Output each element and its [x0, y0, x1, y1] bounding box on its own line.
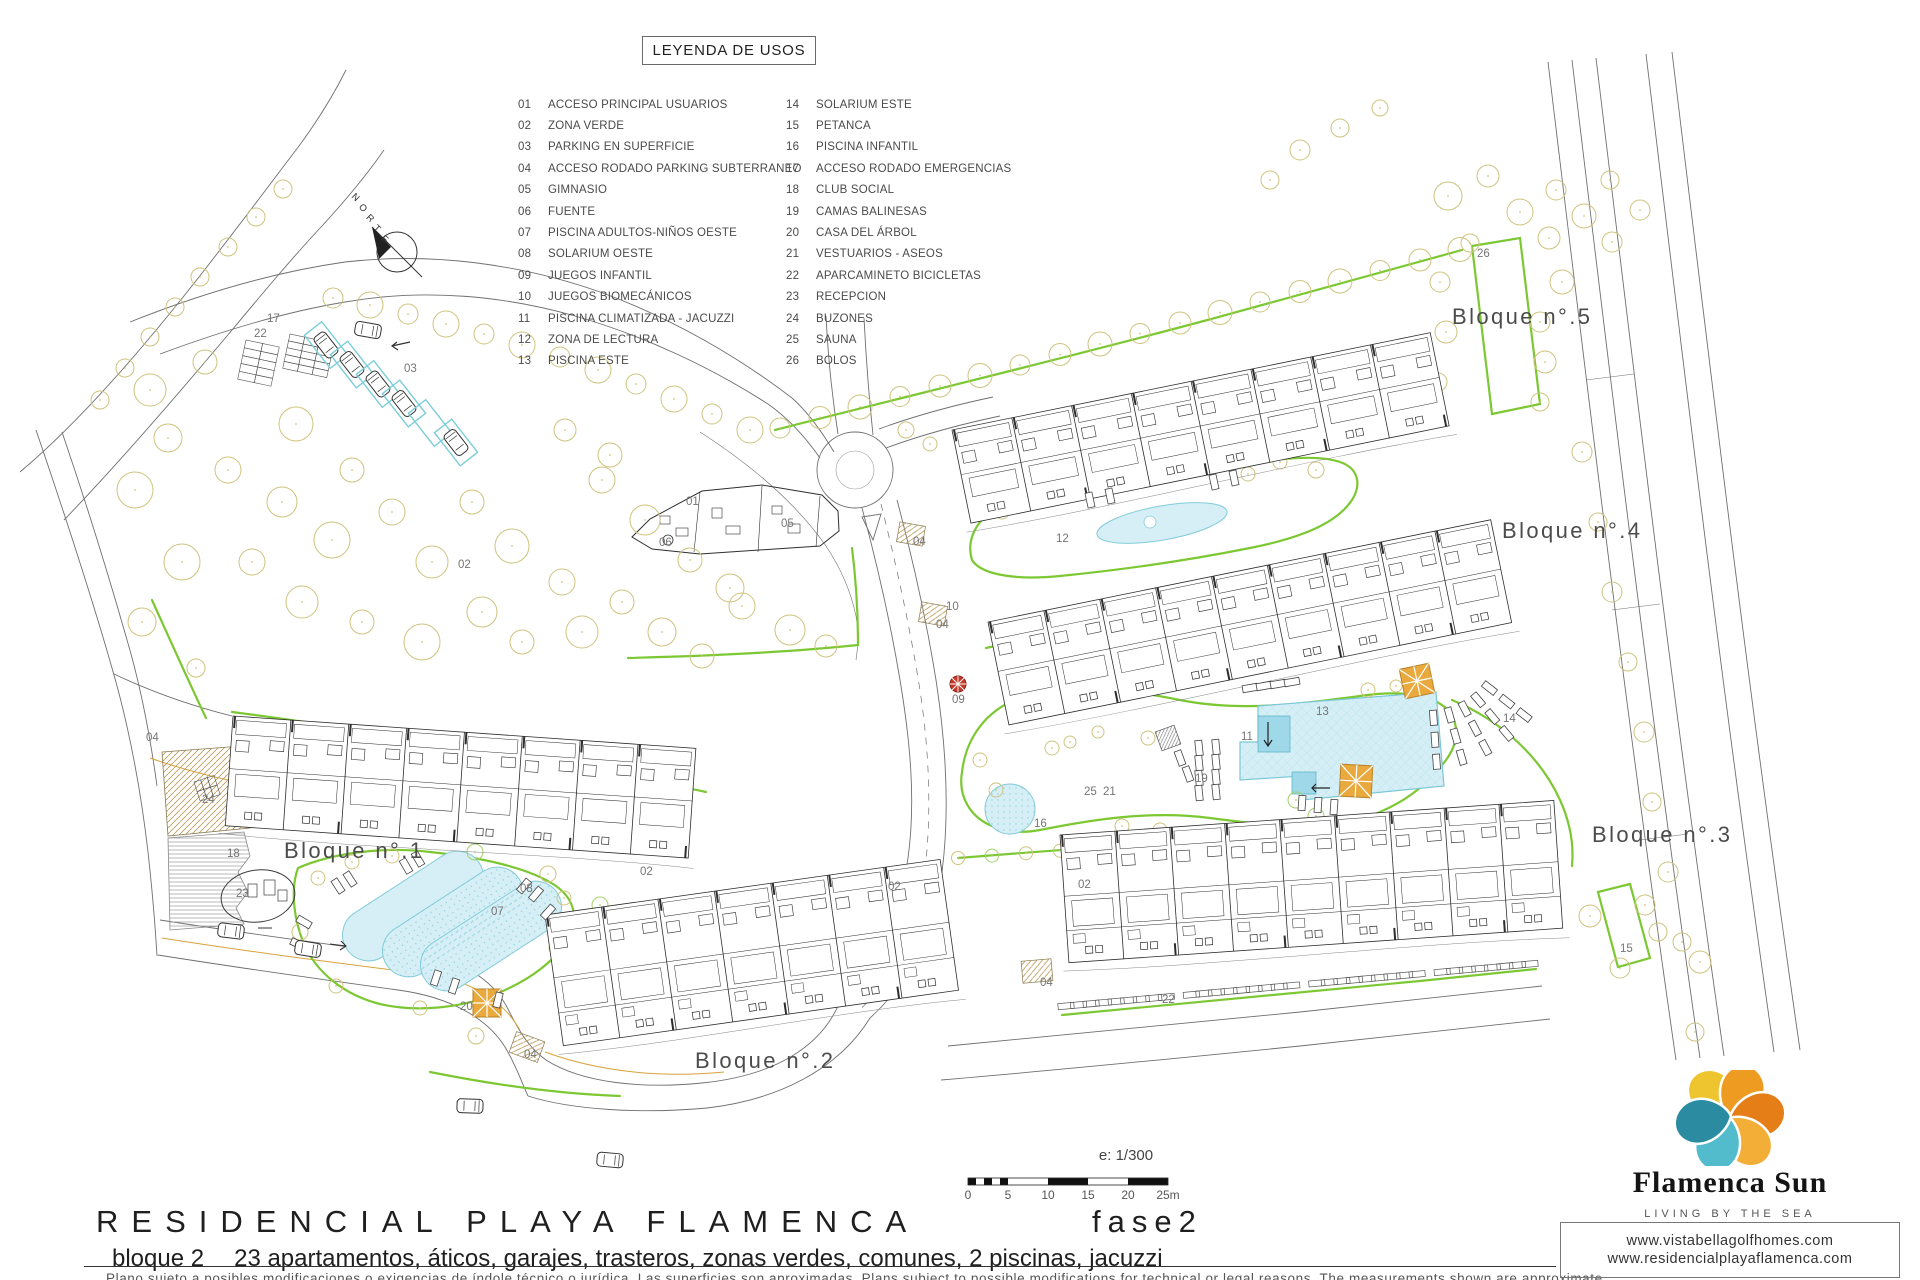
- car-icon: [338, 350, 365, 379]
- area-label: 07: [491, 906, 504, 918]
- legend-item-number: 09: [518, 270, 548, 282]
- legend-item-number: 12: [518, 334, 548, 346]
- sun-lounger: [1212, 784, 1221, 800]
- area-label: 08: [520, 883, 533, 895]
- car-icon: [457, 1099, 483, 1114]
- legend-item-label: SOLARIUM ESTE: [816, 99, 912, 111]
- area-label: 20: [460, 1001, 473, 1013]
- sun-lounger: [1229, 470, 1239, 486]
- legend-item: 18CLUB SOCIAL: [786, 180, 1066, 201]
- area-label: 04: [936, 619, 949, 631]
- area-label: 22: [1162, 994, 1175, 1006]
- legend-item-label: SOLARIUM OESTE: [548, 248, 653, 260]
- legend-item-number: 26: [786, 355, 816, 367]
- sun-lounger: [1195, 740, 1204, 756]
- sun-lounger: [1432, 754, 1440, 769]
- car-icon: [442, 428, 469, 457]
- legend-item: 17ACCESO RODADO EMERGENCIAS: [786, 158, 1066, 179]
- legend-item: 16PISCINA INFANTIL: [786, 137, 1066, 158]
- area-label: 04: [146, 732, 159, 744]
- scale-tick-label: 25m: [1156, 1188, 1179, 1202]
- legend-item-label: FUENTE: [548, 206, 595, 218]
- legend-item: 10JUEGOS BIOMECÁNICOS: [518, 287, 798, 308]
- playground-marker: [950, 676, 966, 692]
- bike-stall: [1522, 960, 1538, 967]
- legend-item-number: 16: [786, 141, 816, 153]
- sun-lounger: [1182, 766, 1194, 782]
- legend-item-label: PISCINA CLIMATIZADA - JACUZZI: [548, 313, 734, 325]
- legend-item: 06FUENTE: [518, 201, 798, 222]
- website-url: www.residencialplayaflamenca.com: [1608, 1251, 1853, 1267]
- brand-tagline: LIVING BY THE SEA: [1540, 1208, 1920, 1220]
- pool-heated-jacuzzi: [1258, 716, 1290, 752]
- legend-item-number: 15: [786, 120, 816, 132]
- block-label: Bloque n°.5: [1452, 304, 1592, 329]
- legend-item: 23RECEPCION: [786, 287, 1066, 308]
- area-label: 03: [404, 363, 417, 375]
- legend-item-label: APARCAMINETO BICICLETAS: [816, 270, 981, 282]
- legend-item-number: 02: [518, 120, 548, 132]
- legend-item: 03PARKING EN SUPERFICIE: [518, 137, 798, 158]
- legend-item-number: 08: [518, 248, 548, 260]
- phase-label: fase2: [1092, 1204, 1203, 1240]
- legend-item-label: JUEGOS BIOMECÁNICOS: [548, 291, 692, 303]
- sun-lounger: [1212, 754, 1221, 770]
- sun-lounger: [1450, 728, 1461, 744]
- legend-item-label: PETANCA: [816, 120, 871, 132]
- legend-item: 13PISCINA ESTE: [518, 351, 798, 372]
- sun-lounger: [1209, 474, 1219, 490]
- area-label: 01: [686, 496, 699, 508]
- area-label: 02: [888, 881, 901, 893]
- legend-item: 02ZONA VERDE: [518, 115, 798, 136]
- club-social: [168, 832, 250, 930]
- legend-item-label: SAUNA: [816, 334, 857, 346]
- legend-item-label: BOLOS: [816, 355, 857, 367]
- area-label: 25: [1084, 786, 1097, 798]
- legend-item-label: CLUB SOCIAL: [816, 184, 894, 196]
- sun-lounger: [1456, 749, 1467, 765]
- reading-zone-pool: [1094, 495, 1230, 551]
- wooden-deck: [1399, 663, 1435, 699]
- footer-divider: [84, 1266, 1556, 1267]
- legend-item-label: JUEGOS INFANTIL: [548, 270, 652, 282]
- area-label: 21: [1103, 786, 1116, 798]
- scale-tick-label: 15: [1081, 1188, 1095, 1202]
- legend-item: 04ACCESO RODADO PARKING SUBTERRANEO: [518, 158, 798, 179]
- legend-item-number: 04: [518, 163, 548, 175]
- sun-lounger: [1298, 795, 1306, 810]
- legend-item: 21VESTUARIOS - ASEOS: [786, 244, 1066, 265]
- scale-tick-label: 0: [965, 1188, 972, 1202]
- legend-item: 01ACCESO PRINCIPAL USUARIOS: [518, 94, 798, 115]
- bike-stall: [1409, 971, 1425, 978]
- sun-lounger: [1195, 785, 1204, 801]
- sun-lounger: [1444, 707, 1455, 723]
- scale-tick-label: 10: [1041, 1188, 1055, 1202]
- sun-lounger: [1479, 739, 1492, 756]
- legend-item-number: 18: [786, 184, 816, 196]
- legend-title: LEYENDA DE USOS: [642, 36, 816, 65]
- legend-item-number: 03: [518, 141, 548, 153]
- sun-lounger: [1314, 797, 1322, 812]
- legend-item-number: 01: [518, 99, 548, 111]
- sun-lounger: [1516, 708, 1532, 723]
- scale-tick-label: 5: [1005, 1188, 1012, 1202]
- sun-lounger: [1270, 679, 1286, 688]
- sun-lounger: [1212, 769, 1221, 785]
- sun-lounger: [1468, 720, 1481, 737]
- sun-lounger: [1431, 732, 1439, 747]
- area-label: 04: [913, 536, 926, 548]
- legend-item: 14SOLARIUM ESTE: [786, 94, 1066, 115]
- legend-item: 08SOLARIUM OESTE: [518, 244, 798, 265]
- sun-lounger: [1174, 750, 1186, 766]
- area-label: 17: [267, 313, 280, 325]
- legend-item-label: BUZONES: [816, 313, 873, 325]
- sun-lounger: [1499, 725, 1514, 741]
- legend-item-label: ZONA VERDE: [548, 120, 624, 132]
- area-label: 15: [1620, 943, 1633, 955]
- area-label: 02: [1078, 879, 1091, 891]
- legend-item-number: 13: [518, 355, 548, 367]
- area-label: 11: [1241, 731, 1253, 743]
- legend-item-number: 14: [786, 99, 816, 111]
- area-label: 02: [458, 559, 471, 571]
- area-label: 24: [202, 794, 215, 806]
- area-label: 04: [524, 1049, 537, 1061]
- legend-item-number: 06: [518, 206, 548, 218]
- area-label: 26: [1477, 248, 1490, 260]
- block-label: Bloque n°.1: [284, 838, 424, 863]
- legend-item-number: 17: [786, 163, 816, 175]
- legend-item: 25SAUNA: [786, 329, 1066, 350]
- pool-infant: [985, 784, 1035, 834]
- legend-item-label: VESTUARIOS - ASEOS: [816, 248, 943, 260]
- legend-item-label: ACCESO RODADO PARKING SUBTERRANEO: [548, 163, 802, 175]
- area-label: 04: [1040, 977, 1053, 989]
- legend-item-label: PISCINA ESTE: [548, 355, 629, 367]
- block-summary-text: 23 apartamentos, áticos, garajes, traste…: [234, 1245, 1162, 1272]
- area-label: 14: [1503, 713, 1516, 725]
- legend-item: 07PISCINA ADULTOS-NIÑOS OESTE: [518, 222, 798, 243]
- car-icon: [354, 321, 382, 339]
- compass-letter: R: [364, 212, 377, 225]
- block-label: Bloque n°.2: [695, 1048, 835, 1073]
- sun-lounger: [1284, 677, 1300, 686]
- car-icon: [596, 1152, 623, 1168]
- area-label: 22: [254, 328, 267, 340]
- legend-item: 12ZONA DE LECTURA: [518, 329, 798, 350]
- area-label: 16: [1034, 818, 1047, 830]
- scale-tick-label: 20: [1121, 1188, 1135, 1202]
- car-icon: [312, 330, 339, 359]
- biomech-games: [1155, 725, 1181, 751]
- legend-item-label: ZONA DE LECTURA: [548, 334, 658, 346]
- legend-item-label: PARKING EN SUPERFICIE: [548, 141, 694, 153]
- sun-lounger: [1330, 799, 1338, 814]
- legend-column-2: 14SOLARIUM ESTE15PETANCA16PISCINA INFANT…: [786, 94, 1066, 372]
- legend-item-number: 19: [786, 206, 816, 218]
- bike-parking-grid: [238, 340, 280, 386]
- compass-letter: O: [356, 202, 369, 215]
- legend-item-number: 07: [518, 227, 548, 239]
- legend-item: 19CAMAS BALINESAS: [786, 201, 1066, 222]
- north-compass: [372, 227, 422, 277]
- sun-swirl-logo-icon: [1674, 1070, 1786, 1166]
- apartment-block: [539, 859, 966, 1057]
- area-label: 10: [946, 601, 959, 613]
- legend-item-number: 20: [786, 227, 816, 239]
- legend-item-label: GIMNASIO: [548, 184, 607, 196]
- area-label: 12: [1056, 533, 1069, 545]
- brand-name: Flamenca Sun: [1540, 1166, 1920, 1200]
- sun-lounger: [1499, 694, 1515, 709]
- legend-item-number: 24: [786, 313, 816, 325]
- legend-item: 11PISCINA CLIMATIZADA - JACUZZI: [518, 308, 798, 329]
- website-url: www.vistabellagolfhomes.com: [1627, 1233, 1834, 1249]
- sun-lounger: [331, 878, 345, 894]
- compass-letters: NORTE: [349, 191, 390, 245]
- area-label: 09: [952, 694, 965, 706]
- legend-item-label: PISCINA INFANTIL: [816, 141, 918, 153]
- brand-logo-block: Flamenca Sun LIVING BY THE SEA www.vista…: [1540, 1062, 1920, 1280]
- car-icon: [364, 369, 391, 398]
- area-label: 19: [1195, 773, 1208, 785]
- sun-lounger: [343, 871, 357, 887]
- bike-stall: [1283, 982, 1299, 989]
- block-summary-prefix: bloque 2: [112, 1245, 204, 1272]
- legend-item-number: 21: [786, 248, 816, 260]
- area-label: 13: [1316, 706, 1329, 718]
- sun-lounger: [1242, 683, 1258, 692]
- legend-item-label: RECEPCION: [816, 291, 886, 303]
- wooden-deck: [1339, 764, 1373, 798]
- sun-lounger: [1485, 709, 1500, 725]
- car-icon: [390, 389, 417, 418]
- block-summary: bloque 223 apartamentos, áticos, garajes…: [112, 1245, 1163, 1273]
- legend-item-label: PISCINA ADULTOS-NIÑOS OESTE: [548, 227, 737, 239]
- scale-bar: 0510152025me: 1/300: [965, 1147, 1180, 1202]
- legend-item-number: 22: [786, 270, 816, 282]
- car-icon: [217, 922, 245, 939]
- legend-item-label: CAMAS BALINESAS: [816, 206, 927, 218]
- block-label: Bloque n°.4: [1502, 518, 1642, 543]
- site-plan-sheet: 0510152025me: 1/300 NORTE 17220301050602…: [0, 0, 1920, 1280]
- sun-lounger: [1471, 692, 1486, 708]
- legend-item-label: ACCESO PRINCIPAL USUARIOS: [548, 99, 727, 111]
- brand-websites-box: www.vistabellagolfhomes.com www.residenc…: [1560, 1222, 1900, 1278]
- block-label: Bloque n°.3: [1592, 822, 1732, 847]
- sun-lounger: [1429, 710, 1437, 725]
- area-label: 02: [640, 866, 653, 878]
- sun-lounger: [1481, 681, 1497, 696]
- area-label: 05: [781, 518, 794, 530]
- legend-item: 09JUEGOS INFANTIL: [518, 265, 798, 286]
- scale-ratio-label: e: 1/300: [1099, 1147, 1153, 1164]
- legend-item: 24BUZONES: [786, 308, 1066, 329]
- pool-west-adults: [333, 841, 572, 1001]
- legend-item-label: ACCESO RODADO EMERGENCIAS: [816, 163, 1011, 175]
- legend-item-number: 11: [518, 313, 548, 325]
- legend-item-number: 05: [518, 184, 548, 196]
- legend-item: 20CASA DEL ÁRBOL: [786, 222, 1066, 243]
- legend-column-1: 01ACCESO PRINCIPAL USUARIOS02ZONA VERDE0…: [518, 94, 798, 372]
- disclaimer: Plano sujeto a posibles modificaciones o…: [106, 1271, 1607, 1280]
- project-title: RESIDENCIAL PLAYA FLAMENCA: [96, 1204, 919, 1240]
- legend-item-label: CASA DEL ÁRBOL: [816, 227, 917, 239]
- legend-item-number: 25: [786, 334, 816, 346]
- sun-lounger: [1195, 755, 1204, 771]
- legend-item: 05GIMNASIO: [518, 180, 798, 201]
- area-label: 23: [236, 888, 249, 900]
- legend-item: 22APARCAMINETO BICICLETAS: [786, 265, 1066, 286]
- sun-lounger: [1212, 739, 1221, 755]
- sun-lounger: [1256, 681, 1272, 690]
- area-label: 06: [659, 537, 672, 549]
- legend-item: 26BOLOS: [786, 351, 1066, 372]
- area-label: 18: [227, 848, 240, 860]
- legend-item-number: 10: [518, 291, 548, 303]
- apartment-block: [1054, 800, 1569, 973]
- legend-item-number: 23: [786, 291, 816, 303]
- legend-item: 15PETANCA: [786, 115, 1066, 136]
